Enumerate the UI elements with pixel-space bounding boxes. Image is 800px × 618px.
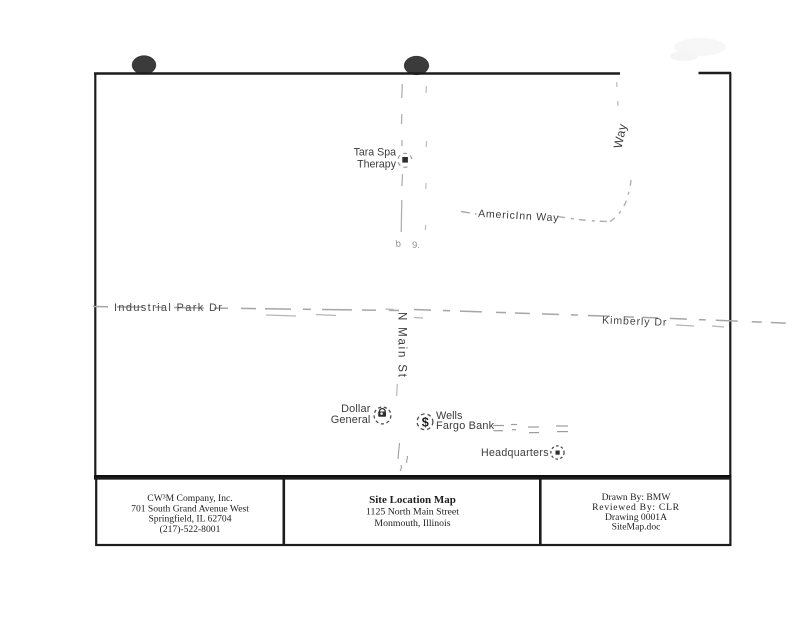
svg-text:SiteMap.doc: SiteMap.doc xyxy=(612,522,661,533)
svg-text:Industrial Park Dr: Industrial Park Dr xyxy=(114,302,223,314)
svg-text:(217)-522-8001: (217)-522-8001 xyxy=(160,524,221,535)
svg-text:Therapy: Therapy xyxy=(357,159,397,171)
svg-text:General: General xyxy=(331,414,371,426)
svg-text:Headquarters: Headquarters xyxy=(481,447,549,459)
svg-text:Site Location Map: Site Location Map xyxy=(369,494,456,506)
svg-text:9.: 9. xyxy=(412,240,420,251)
svg-text:$: $ xyxy=(422,416,429,430)
svg-text:Monmouth, Illinois: Monmouth, Illinois xyxy=(374,518,450,529)
svg-text:Kimberly Dr: Kimberly Dr xyxy=(602,315,668,329)
svg-text:Fargo Bank: Fargo Bank xyxy=(436,420,495,432)
svg-text:Tara Spa: Tara Spa xyxy=(354,147,397,159)
svg-text:N Main St: N Main St xyxy=(396,312,408,379)
svg-text:1125 North Main Street: 1125 North Main Street xyxy=(366,507,459,518)
